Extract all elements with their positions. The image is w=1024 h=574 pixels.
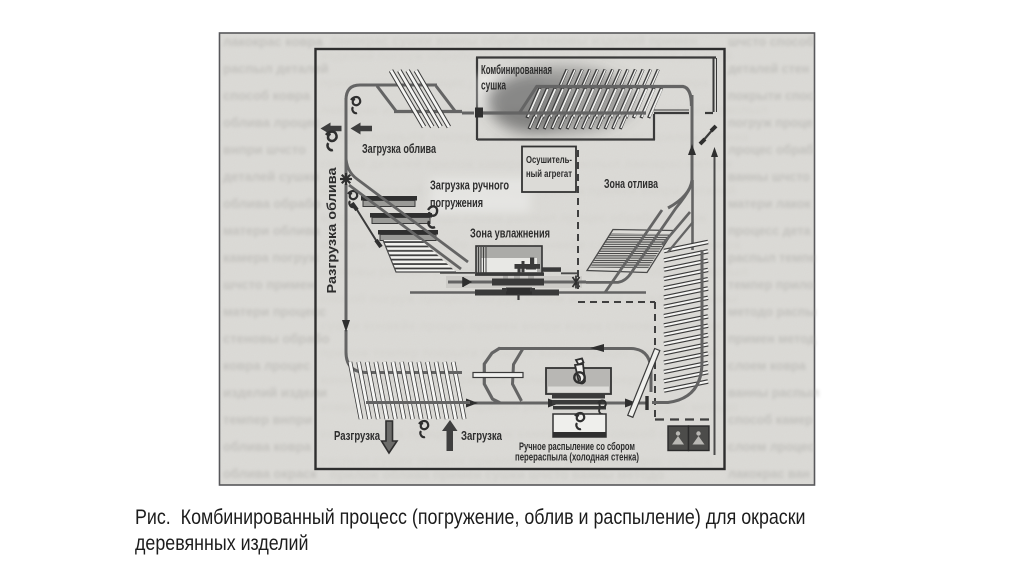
svg-text:перераспыла (холодная стенка): перераспыла (холодная стенка) [515,452,639,464]
svg-text:лакокрас ван: лакокрас ван [728,467,810,481]
svg-text:матери лакок: матери лакок [728,197,812,211]
svg-text:распыл темпе: распыл темпе [728,251,816,265]
svg-text:Осушитель-: Осушитель- [526,154,572,166]
svg-text:облива лроцес: облива лроцес [223,115,320,130]
svg-text:распыл деталей: распыл деталей [223,61,328,76]
svg-text:Загрузка: Загрузка [461,429,503,443]
svg-text:деталей стен: деталей стен [728,62,809,76]
svg-text:ковра лроцес: ковра лроцес [223,358,310,373]
svg-text:матери процесс: матери процесс [223,304,326,319]
svg-text:изделий погруж обрабо матери л: изделий погруж обрабо матери лроцес внпр… [320,48,732,63]
svg-text:слоем лроцес: слоем лроцес [728,440,815,454]
svg-text:Комбинированная: Комбинированная [481,63,552,77]
svg-text:лроцес обраб: лроцес обраб [728,143,814,157]
svg-text:Разгрузка: Разгрузка [334,429,381,443]
svg-text:ванны распыл: ванны распыл [728,386,819,400]
svg-text:Зона отлива: Зона отлива [604,176,659,191]
svg-text:слоем ковра: слоем ковра [728,359,807,373]
svg-text:Разгрузка облива: Разгрузка облива [325,166,339,293]
svg-text:методо распы: методо распы [728,305,816,319]
svg-text:погруж проце: погруж проце [728,116,813,130]
svg-text:Загрузка ручного: Загрузка ручного [430,178,509,193]
svg-text:сушки конвейе лроцес примен вн: сушки конвейе лроцес примен внпри ковра … [320,318,724,333]
svg-text:погружения: погружения [430,195,483,210]
svg-text:лакокрас сушки ванны обрабо ст: лакокрас сушки ванны обрабо стеновы изде… [330,33,697,48]
svg-text:способ камер: способ камер [728,413,813,427]
svg-text:лакокрас ковра: лакокрас ковра [223,34,323,49]
svg-text:примен метод: примен метод [728,332,816,346]
svg-text:ный агрегат: ный агрегат [526,168,572,180]
svg-text:облива ковра: облива ковра [223,439,312,454]
svg-text:облива обрабо: облива обрабо [223,196,321,211]
svg-text:темпер прило: темпер прило [728,278,814,292]
svg-text:Загрузка облива: Загрузка облива [362,142,437,156]
svg-text:камера погруж: камера погруж [223,250,319,265]
svg-text:покрыти спос: покрыти спос [728,89,814,103]
svg-text:сушка: сушка [481,79,507,93]
svg-text:темпер внпри: темпер внпри [223,412,312,427]
svg-text:матери облива: матери облива [223,223,321,238]
svg-text:ванны шчсто: ванны шчсто [728,170,810,184]
svg-text:внпри шчсто: внпри шчсто [223,142,306,157]
svg-text:стеновы обрабо: стеновы обрабо [223,331,329,346]
svg-text:облива окраск: облива окраск [223,466,317,481]
svg-text:процесс дета: процесс дета [728,224,812,238]
svg-text:изделий издели: изделий издели [223,385,327,400]
svg-text:шчсто примен: шчсто примен [223,277,315,292]
svg-text:деталей сушки: деталей сушки [223,169,319,184]
svg-text:способ ковра: способ ковра [223,88,311,103]
svg-text:шчсто способ: шчсто способ [728,35,814,49]
svg-text:Зона увлажнения: Зона увлажнения [470,226,550,241]
